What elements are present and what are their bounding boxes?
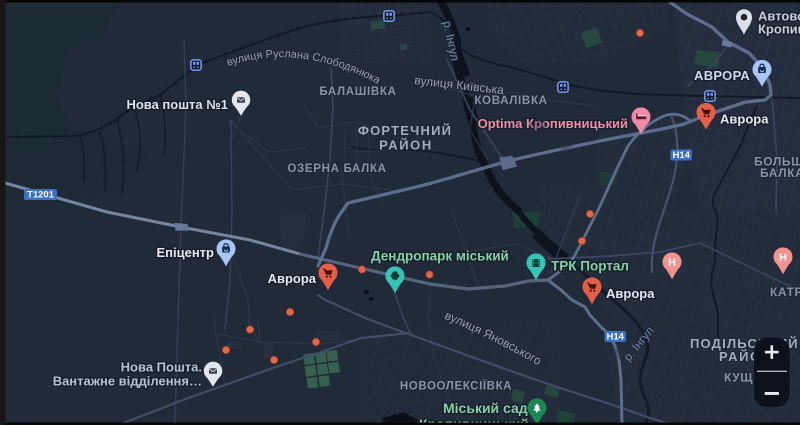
svg-text:КАТРАНІВКА: КАТРАНІВКА — [770, 285, 800, 299]
svg-text:Дендропарк міський: Дендропарк міський — [371, 249, 509, 264]
svg-text:Нова пошта №1: Нова пошта №1 — [126, 97, 228, 112]
svg-text:H: H — [779, 252, 787, 264]
svg-text:Н14: Н14 — [672, 150, 690, 161]
svg-text:РАЙОН: РАЙОН — [379, 138, 433, 153]
svg-text:Н14: Н14 — [606, 332, 624, 343]
svg-text:Аврора: Аврора — [720, 112, 769, 127]
svg-text:Optima Кропивницький: Optima Кропивницький — [478, 116, 628, 131]
svg-text:КОВАЛІВКА: КОВАЛІВКА — [474, 95, 547, 107]
svg-text:Вантажне відділення…: Вантажне відділення… — [53, 374, 202, 389]
svg-text:Епіцентр: Епіцентр — [156, 245, 214, 260]
svg-text:БАЛКА: БАЛКА — [760, 166, 800, 180]
svg-text:БАЛАШІВКА: БАЛАШІВКА — [319, 86, 396, 98]
svg-text:H: H — [668, 257, 676, 269]
svg-text:ФОРТЕЧНИЙ: ФОРТЕЧНИЙ — [358, 123, 452, 138]
svg-text:НОВООЛЕКСІЇВКА: НОВООЛЕКСІЇВКА — [400, 380, 512, 393]
svg-text:ОЗЕРНА БАЛКА: ОЗЕРНА БАЛКА — [287, 163, 386, 175]
svg-text:ТРК Портал: ТРК Портал — [551, 259, 629, 274]
svg-text:Нова Пошта.: Нова Пошта. — [121, 360, 202, 375]
svg-text:АВРОРА: АВРОРА — [694, 68, 750, 83]
svg-text:T1201: T1201 — [27, 190, 55, 201]
svg-text:Аврора: Аврора — [268, 271, 317, 286]
svg-text:Кропивницький: Кропивницький — [758, 22, 800, 37]
svg-text:Міський сад: Міський сад — [443, 400, 528, 416]
svg-text:Аврора: Аврора — [606, 286, 655, 301]
